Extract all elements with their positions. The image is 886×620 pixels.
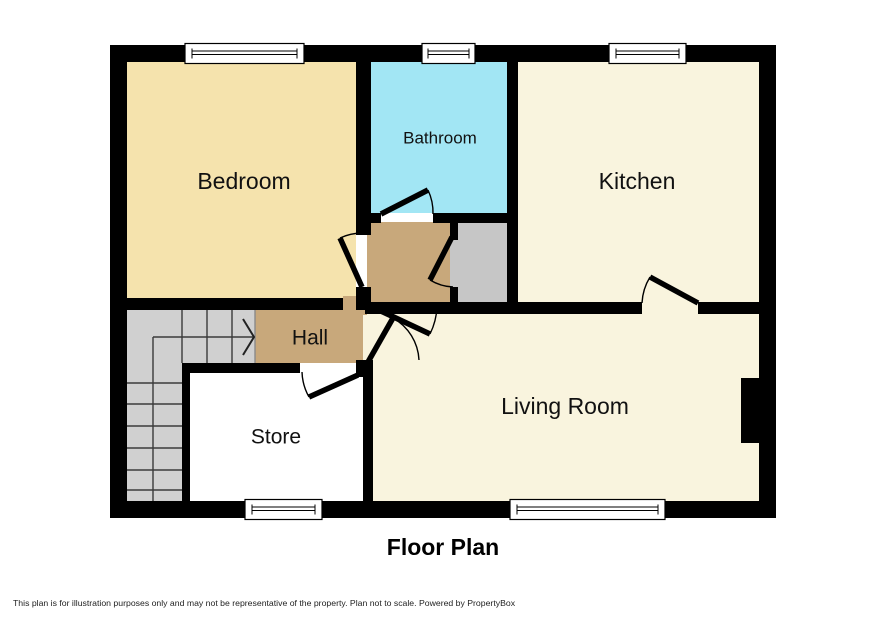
floor-plan-page: Bedroom Bathroom Kitchen Hall Store Livi… (0, 0, 886, 620)
cupboard-floor (450, 222, 507, 302)
plan-title: Floor Plan (387, 534, 499, 560)
central-wall-left (365, 302, 642, 314)
kitchen-window (609, 44, 686, 64)
store-living-wall (363, 373, 373, 501)
living-room-window (510, 500, 665, 520)
bedroom-label: Bedroom (197, 168, 290, 194)
stairs-store-wall (182, 363, 190, 501)
exterior-wall-left (110, 45, 127, 518)
bedroom-window (185, 44, 304, 64)
chimney-breast (741, 378, 759, 443)
bathroom-wall-stub (371, 213, 381, 223)
kitchen-label: Kitchen (599, 168, 676, 194)
bathroom-bottom-wall (433, 213, 507, 223)
store-door (302, 372, 358, 397)
exterior-wall-bottom (110, 501, 776, 518)
exterior-wall-right (759, 45, 776, 518)
hall-label: Hall (292, 327, 328, 350)
bathroom-label: Bathroom (403, 129, 477, 148)
central-wall-right (698, 302, 759, 314)
bathroom-window (422, 44, 475, 64)
cupboard-bottom-stub (450, 287, 458, 302)
store-window (245, 500, 322, 520)
landing-floor (367, 222, 458, 302)
bathroom-kitchen-wall (507, 62, 518, 314)
living-room-label: Living Room (501, 393, 629, 419)
store-label: Store (251, 426, 301, 449)
stairs-lower-run (127, 363, 182, 501)
disclaimer-text: This plan is for illustration purposes o… (13, 598, 516, 608)
store-top-wall (182, 363, 300, 373)
bedroom-landing-wall (356, 62, 371, 235)
bedroom-bottom-wall (110, 298, 343, 310)
